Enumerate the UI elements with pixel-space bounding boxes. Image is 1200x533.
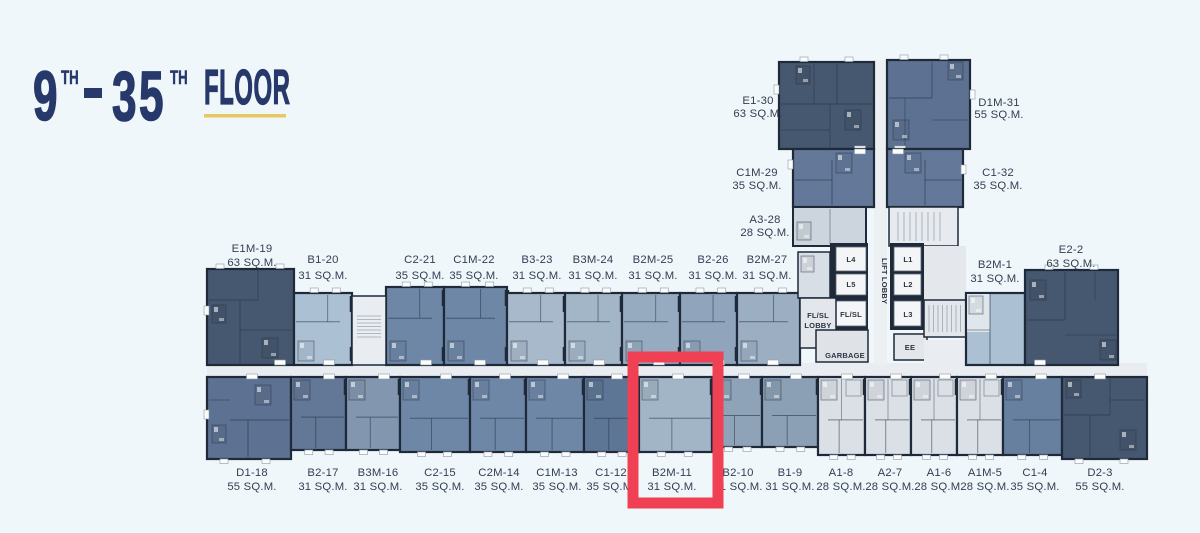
svg-text:B2M-1: B2M-1 [978, 259, 1012, 271]
svg-text:LOBBY: LOBBY [804, 321, 831, 330]
svg-text:B2M-27: B2M-27 [747, 254, 788, 266]
svg-text:31 SQ.M.: 31 SQ.M. [628, 270, 677, 282]
svg-text:A1M-5: A1M-5 [968, 467, 1002, 479]
svg-text:31 SQ.M.: 31 SQ.M. [512, 270, 561, 282]
svg-text:35 SQ.M.: 35 SQ.M. [973, 180, 1022, 192]
svg-text:L3: L3 [903, 310, 912, 319]
svg-text:31 SQ.M.: 31 SQ.M. [353, 481, 402, 493]
svg-text:35 SQ.M.: 35 SQ.M. [532, 481, 581, 493]
svg-text:35 SQ.M.: 35 SQ.M. [732, 180, 781, 192]
svg-text:B2-17: B2-17 [307, 467, 338, 479]
svg-text:B3M-24: B3M-24 [573, 254, 614, 266]
svg-text:35: 35 [112, 58, 166, 136]
svg-text:FLOOR: FLOOR [204, 61, 290, 116]
svg-text:35 SQ.M.: 35 SQ.M. [449, 270, 498, 282]
svg-text:L1: L1 [903, 255, 912, 264]
svg-text:C1-12: C1-12 [595, 467, 627, 479]
svg-text:31 SQ.M.: 31 SQ.M. [765, 481, 814, 493]
svg-text:28 SQ.M.: 28 SQ.M. [865, 481, 914, 493]
svg-text:L4: L4 [846, 255, 856, 264]
svg-text:A1-8: A1-8 [829, 467, 854, 479]
svg-text:55 SQ.M.: 55 SQ.M. [974, 109, 1023, 121]
svg-text:B3M-16: B3M-16 [358, 467, 399, 479]
svg-text:D1-18: D1-18 [236, 467, 268, 479]
svg-text:GARBAGE: GARBAGE [825, 351, 865, 360]
svg-text:FL/SL: FL/SL [840, 310, 862, 319]
svg-text:C1M-13: C1M-13 [536, 467, 577, 479]
svg-text:28 SQ.M.: 28 SQ.M. [960, 481, 1009, 493]
svg-text:C2-15: C2-15 [424, 467, 456, 479]
svg-text:TH: TH [61, 68, 79, 89]
svg-text:C2M-14: C2M-14 [478, 467, 519, 479]
svg-text:35 SQ.M.: 35 SQ.M. [1010, 481, 1059, 493]
svg-text:C1M-29: C1M-29 [736, 167, 777, 179]
svg-text:B1-20: B1-20 [307, 254, 338, 266]
svg-text:TH: TH [170, 68, 188, 89]
svg-text:28 SQ.M.: 28 SQ.M. [816, 481, 865, 493]
svg-text:FL/SL: FL/SL [807, 311, 829, 320]
svg-text:9: 9 [33, 58, 58, 136]
svg-text:A2-7: A2-7 [878, 467, 903, 479]
svg-text:E2-2: E2-2 [1059, 244, 1084, 256]
svg-text:63 SQ.M.: 63 SQ.M. [1046, 258, 1095, 270]
svg-text:E1M-19: E1M-19 [232, 243, 273, 255]
svg-text:31 SQ.M.: 31 SQ.M. [298, 481, 347, 493]
svg-text:D1M-31: D1M-31 [978, 97, 1019, 109]
svg-text:B1-9: B1-9 [778, 467, 803, 479]
svg-text:55 SQ.M.: 55 SQ.M. [227, 481, 276, 493]
svg-text:L5: L5 [846, 280, 855, 289]
svg-text:31 SQ.M.: 31 SQ.M. [742, 270, 791, 282]
svg-text:B2-26: B2-26 [697, 254, 728, 266]
svg-text:C1-4: C1-4 [1022, 467, 1047, 479]
svg-text:31 SQ.M.: 31 SQ.M. [568, 270, 617, 282]
svg-text:35 SQ.M.: 35 SQ.M. [415, 481, 464, 493]
svg-text:C2-21: C2-21 [404, 254, 436, 266]
svg-text:E1-30: E1-30 [742, 95, 773, 107]
svg-text:31 SQ.M.: 31 SQ.M. [647, 481, 696, 493]
svg-text:A1-6: A1-6 [927, 467, 952, 479]
svg-text:B2M-25: B2M-25 [633, 254, 674, 266]
svg-text:B3-23: B3-23 [521, 254, 552, 266]
svg-text:28 SQ.M.: 28 SQ.M. [740, 227, 789, 239]
svg-text:31 SQ.M.: 31 SQ.M. [970, 273, 1019, 285]
svg-text:LIFT LOBBY: LIFT LOBBY [880, 258, 889, 304]
svg-text:L2: L2 [903, 280, 912, 289]
svg-text:31 SQ.M.: 31 SQ.M. [298, 270, 347, 282]
svg-text:C1-32: C1-32 [982, 167, 1014, 179]
svg-text:35 SQ.M.: 35 SQ.M. [474, 481, 523, 493]
svg-text:55 SQ.M.: 55 SQ.M. [1075, 481, 1124, 493]
svg-text:D2-3: D2-3 [1087, 467, 1112, 479]
svg-text:B2M-11: B2M-11 [652, 467, 692, 479]
svg-text:28 SQ.M.: 28 SQ.M. [914, 481, 963, 493]
svg-text:A3-28: A3-28 [749, 214, 780, 226]
svg-text:63 SQ.M.: 63 SQ.M. [227, 257, 276, 269]
svg-text:31 SQ.M.: 31 SQ.M. [688, 270, 737, 282]
svg-text:C1M-22: C1M-22 [453, 254, 494, 266]
svg-text:EE: EE [905, 343, 915, 352]
svg-text:63 SQ.M.: 63 SQ.M. [733, 108, 782, 120]
svg-text:35 SQ.M.: 35 SQ.M. [395, 270, 444, 282]
svg-text:B2-10: B2-10 [722, 467, 753, 479]
